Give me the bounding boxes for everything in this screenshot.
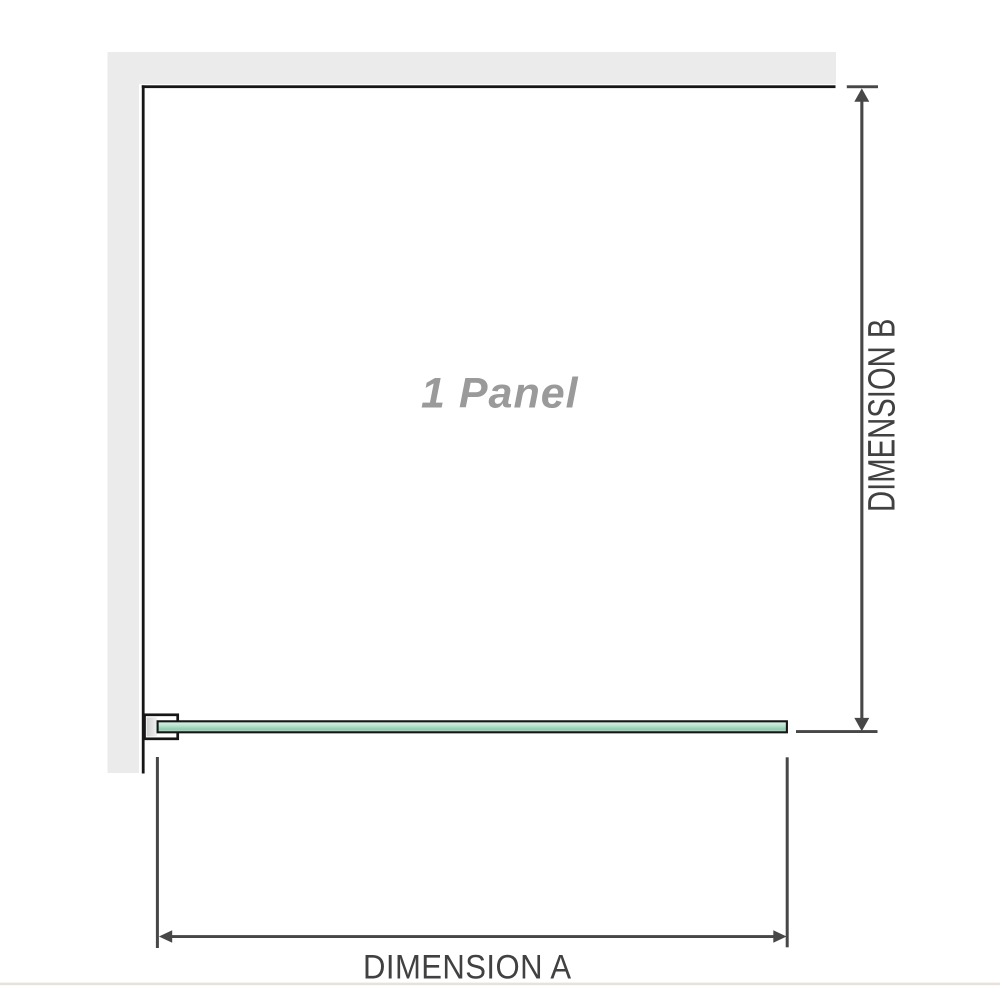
svg-text:DIMENSION A: DIMENSION A <box>363 947 571 986</box>
svg-text:DIMENSION B: DIMENSION B <box>861 319 904 512</box>
svg-text:1 Panel: 1 Panel <box>421 370 579 418</box>
